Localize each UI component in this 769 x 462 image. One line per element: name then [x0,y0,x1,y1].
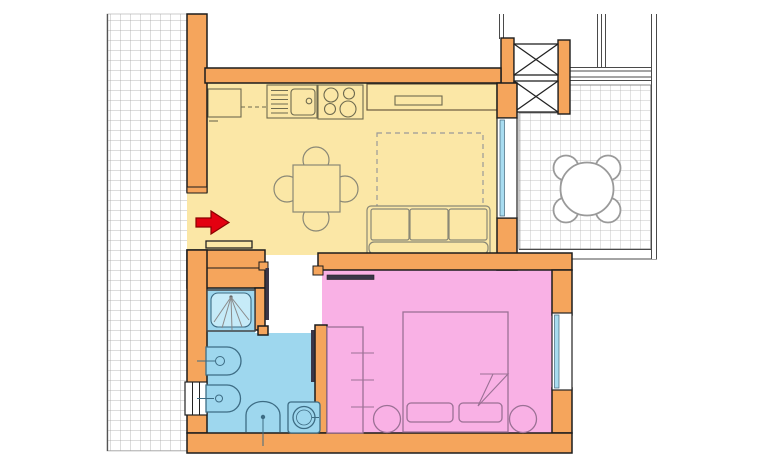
hallway-to-bedroom-door-leaf [327,275,374,280]
wall-bedroom-right-upper [552,270,572,315]
nightstand-left [374,406,401,433]
living-to-hallway-door-leaf [266,268,270,320]
pillow-right [459,403,502,422]
cooktop [318,85,363,119]
sofa-cushion [449,209,487,240]
wall-bath-door-jamb [258,326,268,335]
bedroom-window-glass [555,315,560,388]
wall-bottom [187,433,572,453]
nightstand-right [510,406,537,433]
wall-bedroom-top [318,253,572,270]
wall-bedroom-right-lower [552,388,572,433]
wall-right-upper [497,83,517,118]
floor-plan-drawing [0,0,769,462]
wall-top [205,68,501,83]
kitchen-base-cabinet [208,89,241,117]
wall-shower-hallway [255,288,265,330]
balcony-door-glass [500,120,505,216]
sofa-cushion [371,209,409,240]
balcony-table-set [554,156,621,223]
pillow-left [407,403,453,422]
bedroom-furniture [327,312,537,433]
walkway-tiles [107,14,188,451]
entrance-jamb-tab [187,187,207,193]
wall-left-upper [187,14,207,192]
hallway-to-bathroom-door-leaf [311,330,315,382]
dining-table [293,165,340,212]
balcony-round-table [561,163,614,216]
wall-cabinet-shelf [395,96,442,105]
pillar-wall-right [558,40,570,114]
entrance-door-leaf [206,241,252,248]
washbasin-drain [261,415,265,419]
floor-plan-canvas [0,0,769,462]
sofa-backrest [369,242,488,254]
sofa-cushion [410,209,448,240]
walkway-tile-area [107,14,188,451]
door-jamb-tab [313,266,323,275]
